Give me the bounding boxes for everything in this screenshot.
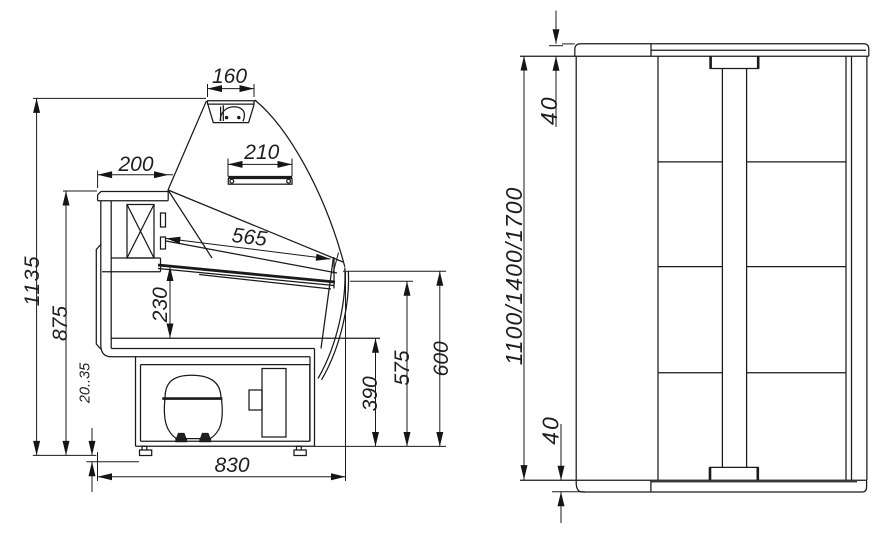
svg-text:200: 200 xyxy=(117,153,153,176)
svg-text:600: 600 xyxy=(430,341,453,376)
svg-text:1100/1400/1700: 1100/1400/1700 xyxy=(501,187,527,366)
svg-text:1135: 1135 xyxy=(21,255,44,306)
svg-text:875: 875 xyxy=(49,306,72,341)
svg-text:40: 40 xyxy=(536,96,562,126)
svg-text:160: 160 xyxy=(212,65,247,88)
svg-text:390: 390 xyxy=(359,376,382,411)
svg-text:40: 40 xyxy=(538,415,564,445)
svg-text:20..35: 20..35 xyxy=(78,362,94,404)
svg-text:830: 830 xyxy=(214,454,249,477)
svg-text:210: 210 xyxy=(243,141,279,164)
svg-text:575: 575 xyxy=(391,350,414,385)
svg-text:230: 230 xyxy=(149,287,172,323)
svg-text:565: 565 xyxy=(231,224,269,251)
